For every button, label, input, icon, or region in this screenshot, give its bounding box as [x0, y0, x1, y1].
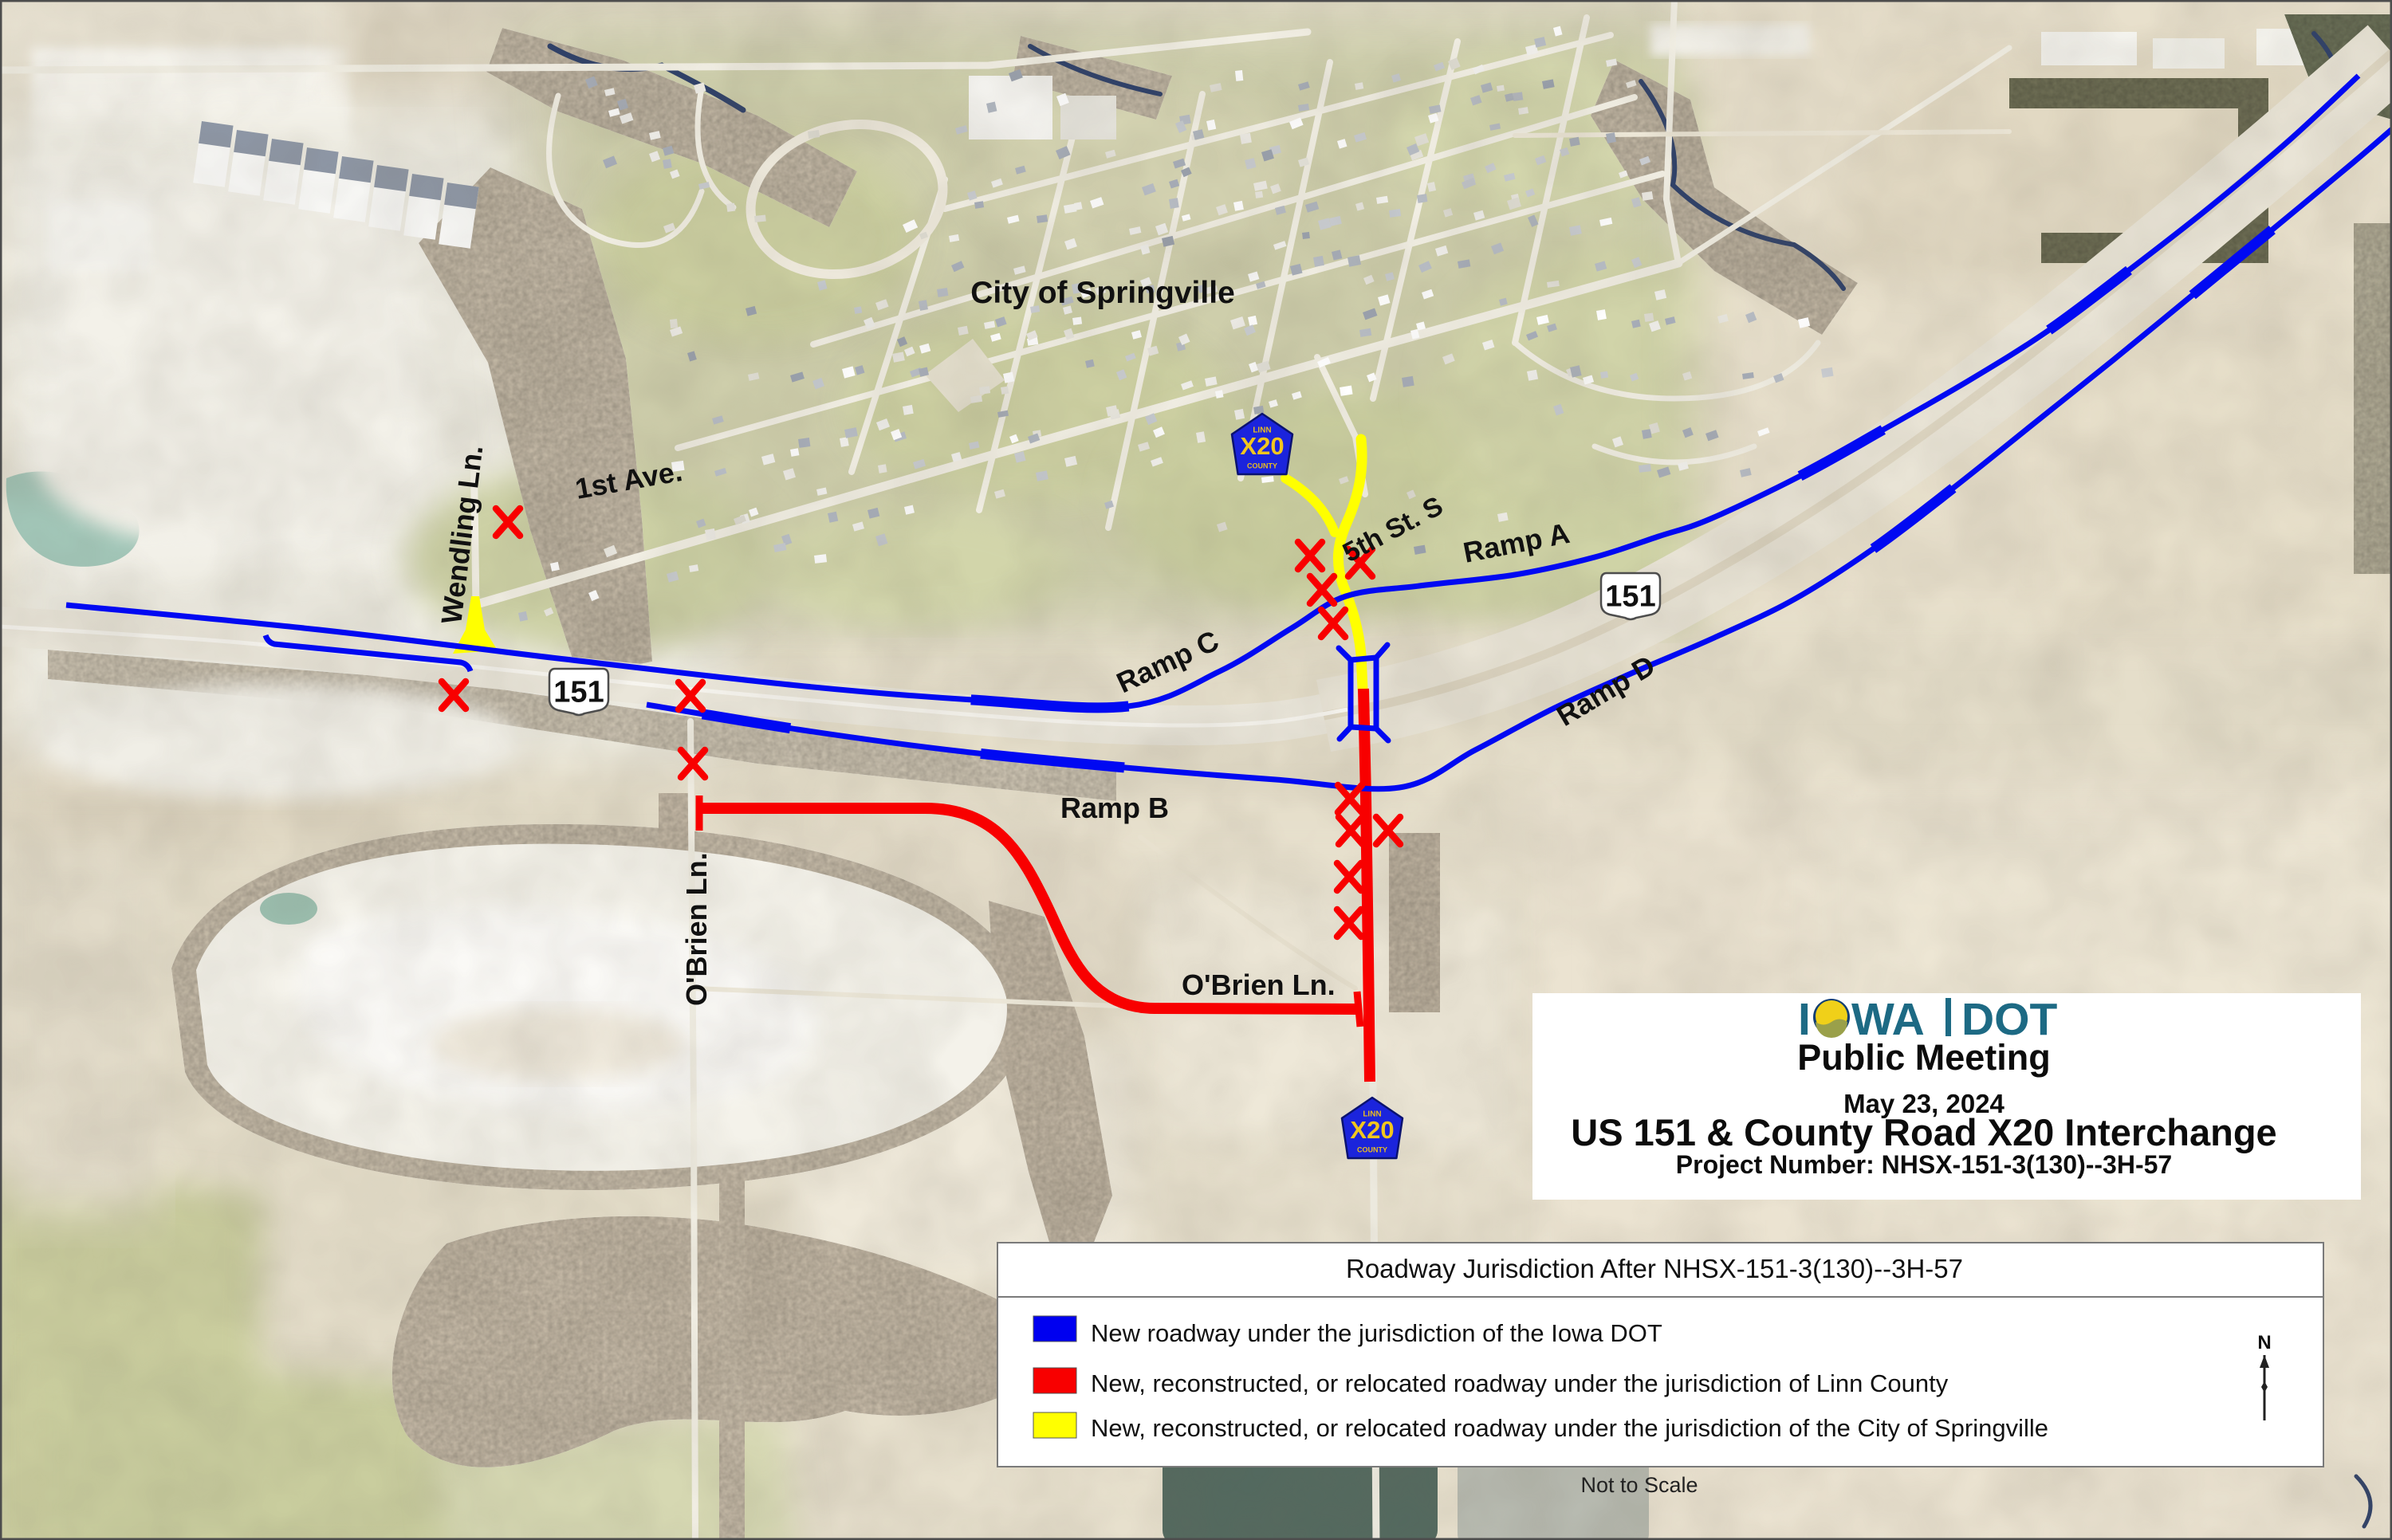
svg-text:X20: X20 [1240, 432, 1284, 460]
svg-text:New, reconstructed, or relocat: New, reconstructed, or relocated roadway… [1091, 1414, 2048, 1442]
svg-text:151: 151 [1605, 580, 1655, 614]
svg-text:COUNTY: COUNTY [1247, 462, 1277, 469]
svg-text:City of Springville: City of Springville [970, 276, 1235, 310]
svg-text:Public Meeting: Public Meeting [1797, 1037, 2051, 1078]
svg-text:US 151 & County Road X20 Inter: US 151 & County Road X20 Interchange [1571, 1111, 2276, 1153]
svg-text:Roadway Jurisdiction After NHS: Roadway Jurisdiction After NHSX-151-3(13… [1346, 1254, 1963, 1283]
svg-text:New, reconstructed, or relocat: New, reconstructed, or relocated roadway… [1091, 1369, 1949, 1397]
svg-text:X20: X20 [1350, 1116, 1394, 1144]
svg-text:New roadway under the jurisdic: New roadway under the jurisdiction of th… [1091, 1319, 1662, 1347]
svg-text:Ramp B: Ramp B [1060, 792, 1169, 824]
svg-text:O'Brien Ln.: O'Brien Ln. [680, 852, 713, 1006]
svg-text:N: N [2257, 1332, 2271, 1353]
svg-text:Project Number: NHSX-151-3(130: Project Number: NHSX-151-3(130)--3H-57 [1676, 1150, 2172, 1179]
svg-text:Not to Scale: Not to Scale [1580, 1473, 1698, 1497]
svg-text:COUNTY: COUNTY [1357, 1145, 1387, 1153]
svg-text:O'Brien Ln.: O'Brien Ln. [1182, 968, 1336, 1001]
svg-text:151: 151 [553, 676, 604, 709]
